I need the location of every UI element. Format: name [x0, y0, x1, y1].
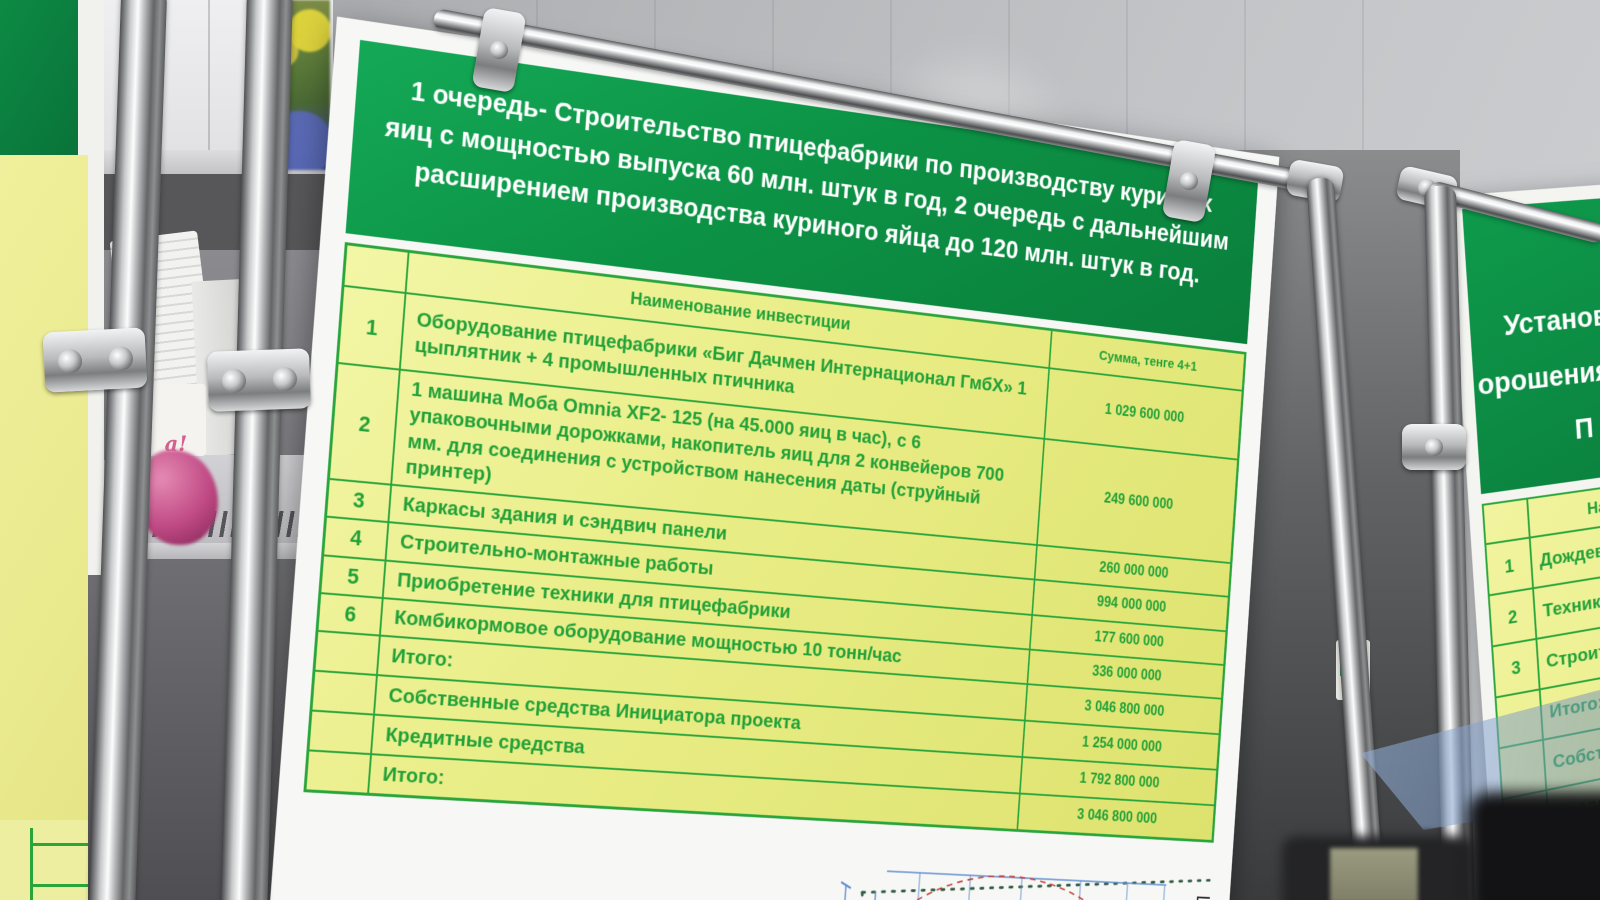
- row-number-cell: [309, 710, 373, 754]
- row-number-cell: 6: [319, 592, 382, 635]
- row-number-cell: 2: [1490, 587, 1536, 645]
- side-title-line: Установ: [1503, 279, 1600, 341]
- clamp-screw: [1425, 438, 1443, 456]
- clamp-screw: [1179, 171, 1200, 192]
- clamp-screw: [108, 346, 133, 371]
- row-number-cell: [312, 670, 376, 714]
- row-number-cell: [316, 630, 380, 674]
- exhibition-room-scene: а! 1 очередь- Строительство птицефабрики…: [0, 0, 1600, 900]
- side-title-line: П: [1574, 383, 1600, 445]
- right-area-group: [1168, 896, 1213, 900]
- left-poster-table-line: [30, 843, 88, 846]
- row-number-cell: 3: [327, 478, 390, 521]
- shelf-gift-box: а!: [146, 384, 206, 456]
- row-number-cell: 1: [339, 285, 405, 369]
- row-number-cell: 2: [330, 362, 399, 484]
- left-poster-table-corner: [0, 820, 88, 900]
- side-title-line: орошения, С: [1477, 331, 1600, 401]
- row-number-header: [1484, 500, 1529, 543]
- pole-clamp: [207, 348, 311, 412]
- clamp-screw: [221, 368, 246, 393]
- clamp-screw: [272, 367, 297, 392]
- pole-clamp: [42, 327, 147, 392]
- row-number-cell: 5: [321, 554, 384, 597]
- row-number-cell: [306, 749, 370, 792]
- left-poster-table-line: [30, 884, 88, 887]
- clamp-screw: [57, 349, 82, 374]
- shelf-cabinet-seam: [208, 0, 210, 150]
- row-number-cell: 4: [324, 516, 387, 559]
- fence-dotted-group: [840, 863, 1211, 900]
- dimension-lines-group: [277, 842, 1167, 900]
- amount-cell: 249 600 000: [1038, 438, 1237, 562]
- left-poster-green-corner: [0, 0, 78, 155]
- investment-table: Наименование инвестиции Сумма, тенге 4+1…: [303, 242, 1246, 843]
- left-poster-yellow: [0, 155, 88, 820]
- row-number-cell: 3: [1493, 638, 1539, 696]
- dark-foreground-object: [1468, 792, 1600, 900]
- row-number-cell: 1: [1486, 537, 1532, 595]
- row-number-header: [345, 245, 408, 292]
- photo-frame-object: [1330, 848, 1418, 900]
- clamp-screw: [489, 40, 510, 61]
- pole-clamp: [1402, 424, 1466, 470]
- left-poster-table-line: [30, 828, 33, 900]
